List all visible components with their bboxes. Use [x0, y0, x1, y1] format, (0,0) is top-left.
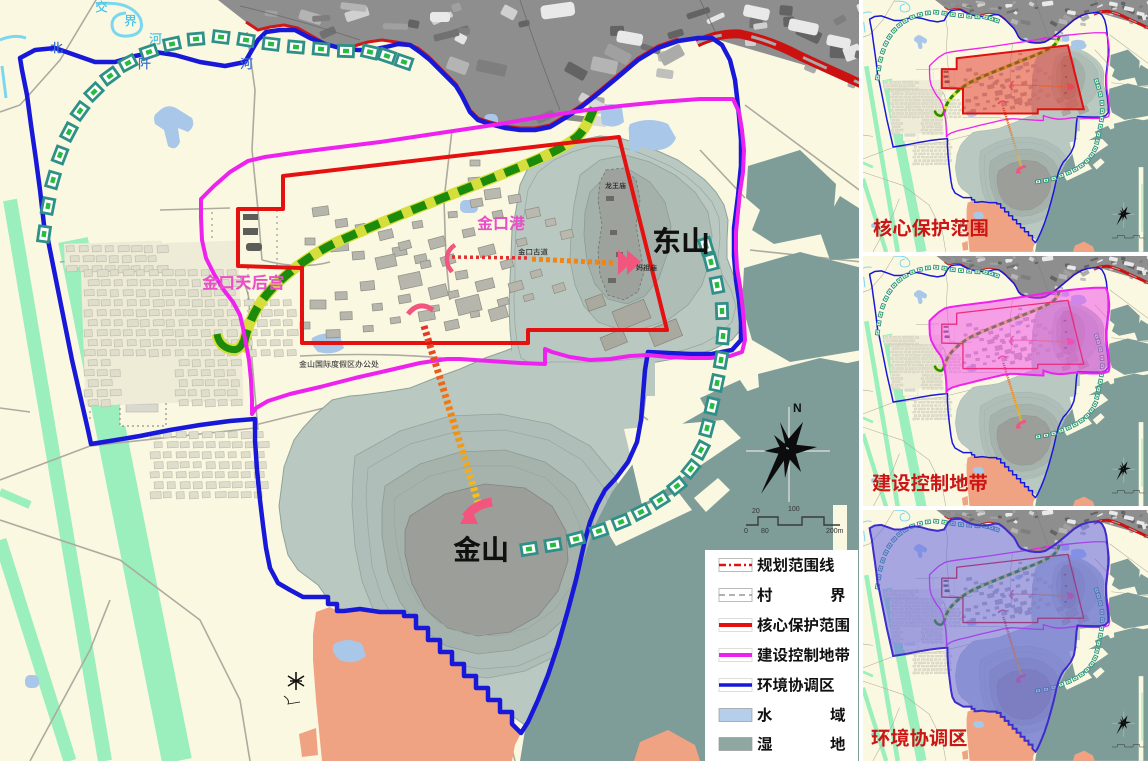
svg-text:200m: 200m — [826, 528, 844, 535]
svg-text:80: 80 — [761, 528, 769, 535]
svg-text:100: 100 — [788, 506, 800, 513]
svg-text:0: 0 — [744, 528, 748, 535]
svg-text:20: 20 — [752, 508, 760, 515]
svg-text:N: N — [793, 401, 802, 415]
